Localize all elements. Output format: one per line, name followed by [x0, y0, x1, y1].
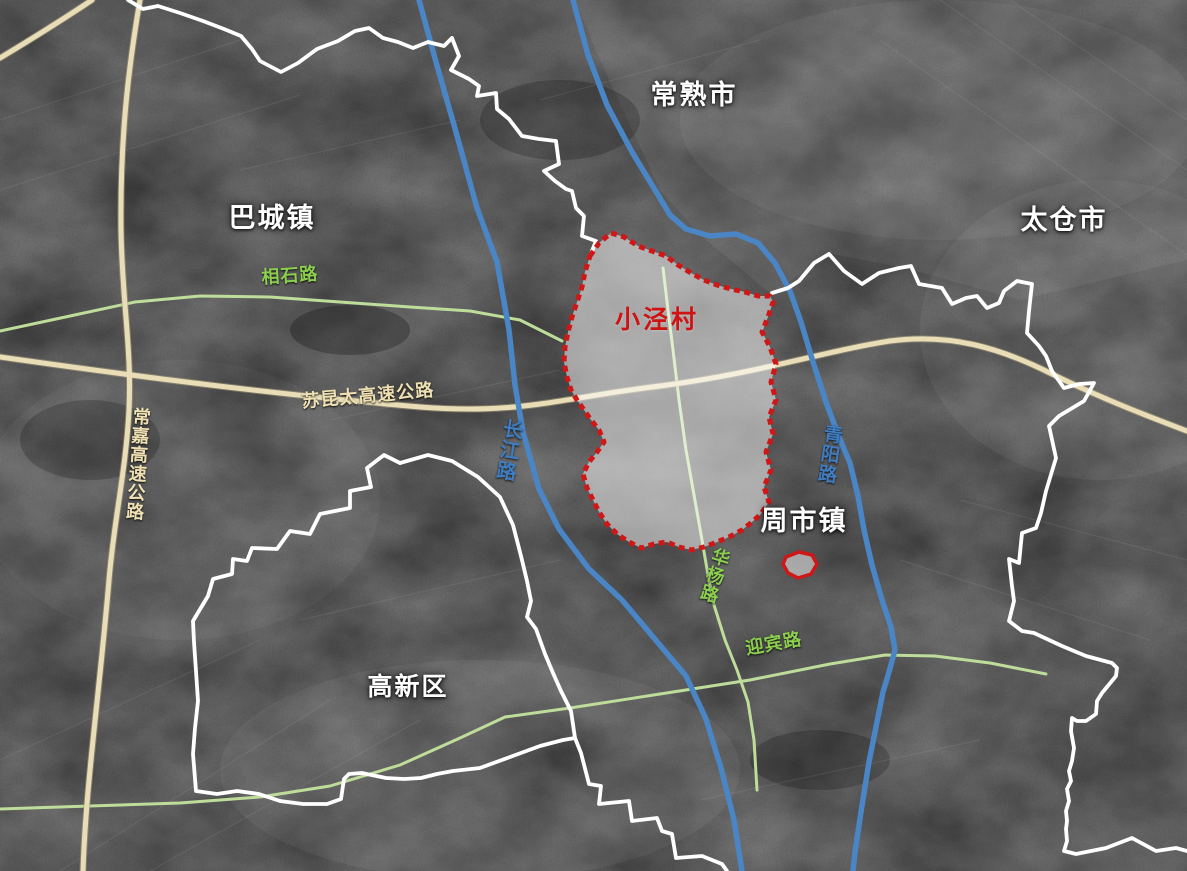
label-hightech-zone: 高新区: [367, 674, 448, 700]
satellite-map: 常熟市 太仓市 巴城镇 周市镇 高新区 小泾村 相石路 苏昆太高速公路 常嘉高速…: [0, 0, 1187, 871]
label-taicang-city: 太仓市: [1021, 207, 1108, 235]
label-zhoushi-town: 周市镇: [761, 508, 848, 536]
label-changshu-city: 常熟市: [651, 82, 738, 110]
map-canvas: [0, 0, 1187, 871]
label-xiangshi-road: 相石路: [261, 266, 319, 289]
label-bacheng-town: 巴城镇: [229, 205, 316, 233]
label-xiaojing-village: 小泾村: [615, 307, 699, 333]
